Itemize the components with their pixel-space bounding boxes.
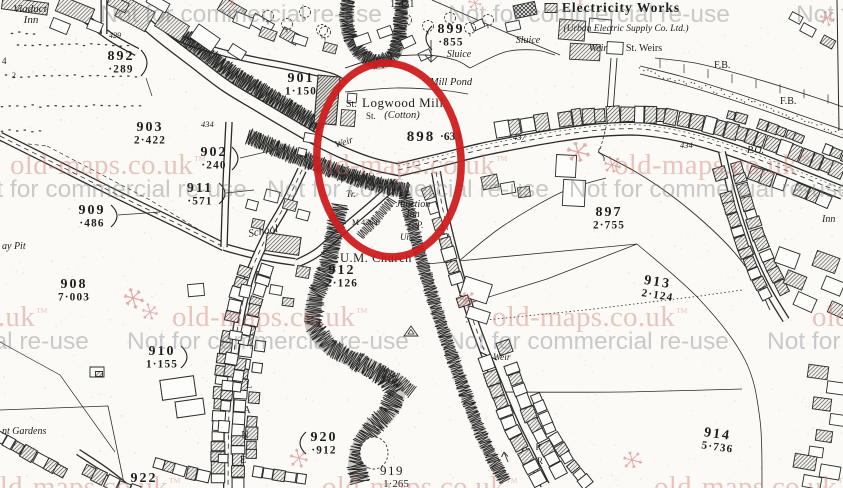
svg-text:TM: TM (356, 306, 368, 315)
svg-text:Not for commercial re-use: Not for commercial re-use (796, 1, 843, 28)
svg-text:·855: ·855 (438, 37, 463, 49)
svg-text:908: 908 (61, 277, 88, 292)
svg-text:P: P (535, 442, 540, 452)
svg-text:F.B.: F.B. (714, 60, 730, 71)
svg-text:898: 898 (407, 129, 436, 145)
svg-text:TM: TM (676, 306, 688, 315)
svg-text:ay Pit: ay Pit (2, 241, 26, 252)
svg-text:TM: TM (496, 154, 508, 163)
svg-text:St. Weirs: St. Weirs (626, 43, 662, 54)
svg-text:1·155: 1·155 (146, 359, 178, 371)
svg-text:Not for commercial re-use: Not for commercial re-use (569, 176, 843, 203)
svg-text:R: R (537, 456, 543, 466)
svg-text:Not for commercial re-use: Not for commercial re-use (0, 176, 247, 203)
svg-text:TM: TM (36, 306, 48, 315)
svg-text:903: 903 (137, 120, 164, 135)
svg-text:1·431: 1·431 (390, 0, 415, 10)
svg-text:2·126: 2·126 (326, 278, 358, 290)
svg-text:912: 912 (329, 263, 356, 278)
svg-text:E: E (240, 455, 246, 466)
svg-text:(Cotton): (Cotton) (384, 110, 420, 121)
svg-text:Not for commercial re-use: Not for commercial re-use (267, 176, 549, 203)
svg-text:429: 429 (109, 31, 121, 40)
svg-text:old-maps.co.uk: old-maps.co.uk (322, 471, 505, 488)
svg-text:TM: TM (194, 154, 206, 163)
svg-text:Sluice: Sluice (516, 35, 541, 46)
svg-text:TM: TM (506, 476, 518, 485)
svg-text:St.: St. (346, 99, 357, 110)
svg-text:2·755: 2·755 (593, 220, 625, 232)
svg-text:N: N (241, 430, 248, 441)
svg-text:M 436·6: M 436·6 (352, 218, 380, 227)
svg-text:nt Gardens: nt Gardens (2, 426, 46, 437)
svg-text:St.: St. (366, 111, 376, 121)
svg-text:Un.: Un. (400, 232, 413, 242)
svg-text:TM: TM (169, 476, 181, 485)
svg-text:2·422: 2·422 (134, 135, 166, 147)
svg-text:901: 901 (288, 71, 315, 86)
svg-text:Inn: Inn (405, 209, 419, 220)
svg-text:2: 2 (12, 71, 16, 80)
svg-text:434: 434 (201, 119, 215, 129)
svg-text:920: 920 (311, 430, 338, 445)
svg-text:4: 4 (2, 56, 7, 66)
svg-text:897: 897 (596, 205, 623, 220)
svg-text:Weir: Weir (589, 43, 608, 54)
svg-text:Sluice: Sluice (447, 49, 472, 60)
svg-text:Not for commercial re-use: Not for commercial re-use (100, 1, 382, 28)
svg-text:G.P.: G.P. (408, 220, 423, 230)
svg-text:TM: TM (798, 154, 810, 163)
svg-text:Not for commercial re-use: Not for commercial re-use (447, 328, 729, 355)
svg-text:·486: ·486 (79, 218, 104, 230)
svg-text:Inn: Inn (821, 214, 835, 225)
svg-text:1·150: 1·150 (285, 86, 317, 98)
svg-text:old-maps.co.uk: old-maps.co.uk (654, 471, 837, 488)
svg-text:Not for commercial re-use: Not for commercial re-use (767, 328, 843, 355)
svg-text:437: 437 (513, 132, 527, 142)
svg-text:·289: ·289 (108, 64, 133, 76)
svg-text:Inn: Inn (23, 14, 39, 26)
svg-text:F.B.: F.B. (780, 96, 796, 107)
svg-text:7·003: 7·003 (58, 292, 90, 304)
svg-text:·912: ·912 (311, 445, 336, 457)
svg-text:A: A (243, 405, 251, 416)
svg-text:Not for commercial re-use: Not for commercial re-use (448, 1, 730, 28)
svg-text:Logwood Mill: Logwood Mill (362, 95, 443, 110)
svg-text:Not for commercial re-use: Not for commercial re-use (127, 328, 409, 355)
svg-text:old-maps.co.uk: old-maps.co.uk (0, 471, 168, 488)
svg-text:Not for commercial re-use: Not for commercial re-use (0, 328, 89, 355)
svg-text:892: 892 (108, 49, 135, 64)
svg-text:TM: TM (838, 476, 843, 485)
svg-text:L: L (246, 380, 252, 391)
svg-text:909: 909 (79, 203, 106, 218)
